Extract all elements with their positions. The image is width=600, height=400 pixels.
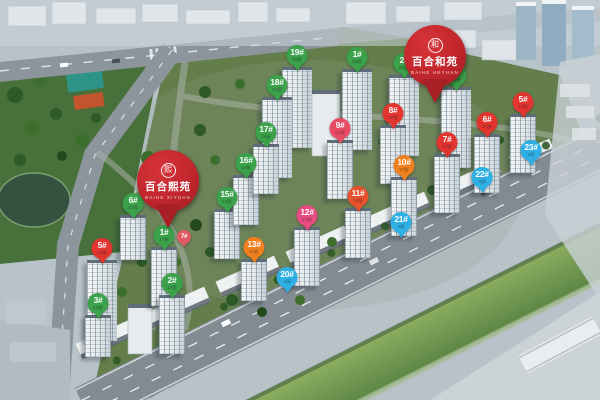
- marker-floors-label: 26层: [292, 58, 302, 63]
- marker-tail: [478, 187, 486, 193]
- marker-label: 12#: [300, 208, 313, 217]
- marker-floors-label: 4层: [283, 280, 290, 285]
- marker-label: 1#: [353, 50, 362, 59]
- marker-label: 11#: [352, 189, 365, 198]
- marker-label: 7#: [181, 234, 187, 240]
- pin-head[interactable]: 和百合和苑BAIHE HEYUAN: [404, 25, 466, 87]
- pin-title-en: BAIHE XIYUAN: [145, 195, 191, 200]
- marker-label: 7#: [443, 135, 452, 144]
- marker-bubble[interactable]: 16#14层: [236, 153, 257, 174]
- marker-floors-label: 14层: [261, 135, 271, 140]
- marker-tail: [303, 225, 311, 231]
- pin-title-en: BAIHE HEYUAN: [411, 70, 459, 75]
- marker-tail: [519, 112, 527, 118]
- marker-floors-label: 4层: [478, 180, 485, 185]
- marker-tail: [223, 207, 231, 213]
- building-marker[interactable]: 23#4层: [521, 140, 542, 166]
- marker-tail: [262, 142, 270, 148]
- marker-label: 6#: [483, 115, 492, 124]
- marker-bubble[interactable]: 22#4层: [472, 167, 493, 188]
- marker-bubble[interactable]: 1#17层: [154, 225, 175, 246]
- marker-bubble[interactable]: 17#14层: [256, 122, 277, 143]
- marker-floors-label: 17层: [442, 145, 452, 150]
- building-marker[interactable]: 5#26层: [92, 238, 113, 264]
- apartment-tower: [345, 208, 371, 258]
- building-marker[interactable]: 15#14层: [217, 187, 238, 213]
- marker-floors-label: 14层: [241, 166, 251, 171]
- marker-label: 2#: [168, 276, 177, 285]
- marker-bubble[interactable]: 19#26层: [287, 45, 308, 66]
- marker-label: 15#: [220, 190, 233, 199]
- marker-floors-label: 14层: [222, 200, 232, 205]
- marker-tail: [94, 313, 102, 319]
- marker-tail: [397, 232, 405, 238]
- pin-tail: [422, 79, 448, 103]
- marker-bubble[interactable]: 9#17层: [330, 118, 351, 139]
- project-pin[interactable]: 和百合和苑BAIHE HEYUAN: [404, 25, 466, 103]
- marker-tail: [181, 243, 187, 247]
- building-marker[interactable]: 3#11层: [88, 293, 109, 319]
- marker-label: 16#: [239, 156, 252, 165]
- marker-bubble[interactable]: 12#17层: [297, 205, 318, 226]
- marker-tail: [168, 293, 176, 299]
- marker-label: 9#: [336, 121, 345, 130]
- marker-tail: [483, 132, 491, 138]
- project-pin[interactable]: 熙百合熙苑BAIHE XIYUAN: [137, 150, 199, 228]
- marker-bubble[interactable]: 21#4层: [391, 212, 412, 233]
- marker-label: 23#: [524, 143, 537, 152]
- marker-floors-label: 17层: [159, 238, 169, 243]
- building-marker[interactable]: 13#11层: [244, 237, 265, 263]
- pin-seal-icon: 和: [428, 38, 443, 53]
- marker-label: 17#: [259, 125, 272, 134]
- marker-floors-label: 17层: [335, 131, 345, 136]
- city-blocks-topright: [516, 0, 594, 66]
- marker-floors-label: 17层: [482, 125, 492, 130]
- pin-head[interactable]: 熙百合熙苑BAIHE XIYUAN: [137, 150, 199, 212]
- building-marker[interactable]: 2#17层: [162, 273, 183, 299]
- marker-floors-label: 26层: [352, 60, 362, 65]
- marker-floors-label: 4层: [397, 225, 404, 230]
- marker-label: 5#: [98, 241, 107, 250]
- apartment-tower: [241, 259, 267, 301]
- marker-bubble[interactable]: 20#4层: [277, 267, 298, 288]
- marker-tail: [400, 175, 408, 181]
- marker-tail: [389, 123, 397, 129]
- marker-bubble[interactable]: 7#: [177, 230, 191, 244]
- marker-label: 1#: [160, 228, 169, 237]
- marker-tail: [353, 67, 361, 73]
- building-marker[interactable]: 1#17层: [154, 225, 175, 251]
- pin-tail: [155, 204, 181, 228]
- marker-bubble[interactable]: 6#17层: [477, 112, 498, 133]
- marker-label: 8#: [389, 106, 398, 115]
- marker-bubble[interactable]: 5#17层: [513, 92, 534, 113]
- apartment-tower: [253, 144, 279, 194]
- building-marker[interactable]: 11#14层: [348, 186, 369, 212]
- marker-floors-label: 11层: [249, 250, 259, 255]
- apartment-tower: [294, 227, 320, 286]
- marker-floors-label: 17层: [167, 286, 177, 291]
- marker-bubble[interactable]: 15#14层: [217, 187, 238, 208]
- building-marker[interactable]: 21#4层: [391, 212, 412, 238]
- marker-tail: [250, 257, 258, 263]
- marker-bubble[interactable]: 18#26层: [267, 75, 288, 96]
- building-marker[interactable]: 12#17层: [297, 205, 318, 231]
- marker-tail: [160, 245, 168, 251]
- marker-bubble[interactable]: 2#17层: [162, 273, 183, 294]
- marker-label: 18#: [270, 78, 283, 87]
- building-marker[interactable]: 7#17层: [437, 132, 458, 158]
- building-marker[interactable]: 6#17层: [477, 112, 498, 138]
- marker-tail: [293, 65, 301, 71]
- marker-floors-label: 14层: [353, 199, 363, 204]
- building-marker[interactable]: 22#4层: [472, 167, 493, 193]
- aerial-site-plan: 19#26层18#26层1#26层2#26层3#26层8#17层9#17层5#1…: [0, 0, 600, 400]
- marker-tail: [98, 258, 106, 264]
- marker-bubble[interactable]: 13#11层: [244, 237, 265, 258]
- marker-floors-label: 17层: [399, 168, 409, 173]
- building-marker[interactable]: 10#17层: [394, 155, 415, 181]
- marker-tail: [443, 152, 451, 158]
- marker-tail: [283, 287, 291, 293]
- building-marker[interactable]: 5#17层: [513, 92, 534, 118]
- building-marker[interactable]: 1#26层: [347, 47, 368, 73]
- marker-bubble[interactable]: 5#26层: [92, 238, 113, 259]
- marker-bubble[interactable]: 10#17层: [394, 155, 415, 176]
- marker-floors-label: 17层: [518, 105, 528, 110]
- marker-floors-label: 4层: [527, 153, 534, 158]
- pin-title-zh: 百合和苑: [412, 54, 458, 69]
- marker-label: 22#: [475, 170, 488, 179]
- building-marker[interactable]: 9#17层: [330, 118, 351, 144]
- marker-floors-label: 26层: [97, 251, 107, 256]
- building-marker[interactable]: 7#: [177, 230, 191, 247]
- building-marker[interactable]: 19#26层: [287, 45, 308, 71]
- park-lake: [0, 173, 70, 227]
- pin-seal-icon: 熙: [161, 163, 176, 178]
- marker-floors-label: 26层: [272, 88, 282, 93]
- marker-label: 10#: [397, 158, 410, 167]
- city-haze-top: [0, 0, 600, 46]
- marker-label: 3#: [94, 296, 103, 305]
- marker-label: 20#: [280, 270, 293, 279]
- marker-label: 13#: [247, 240, 260, 249]
- marker-floors-label: 17层: [388, 116, 398, 121]
- apartment-tower: [85, 315, 111, 357]
- apartment-tower: [159, 295, 185, 354]
- marker-label: 19#: [290, 48, 303, 57]
- marker-tail: [527, 160, 535, 166]
- marker-bubble[interactable]: 23#4层: [521, 140, 542, 161]
- building-marker[interactable]: 8#17层: [383, 103, 404, 129]
- marker-tail: [336, 138, 344, 144]
- building-marker[interactable]: 17#14层: [256, 122, 277, 148]
- marker-floors-label: 17层: [302, 218, 312, 223]
- marker-bubble[interactable]: 7#17层: [437, 132, 458, 153]
- marker-bubble[interactable]: 3#11层: [88, 293, 109, 314]
- marker-tail: [354, 206, 362, 212]
- marker-bubble[interactable]: 1#26层: [347, 47, 368, 68]
- marker-bubble[interactable]: 8#17层: [383, 103, 404, 124]
- marker-tail: [129, 213, 137, 219]
- marker-floors-label: 11层: [93, 306, 103, 311]
- apartment-tower: [434, 154, 460, 213]
- marker-tail: [273, 95, 281, 101]
- marker-label: 21#: [394, 215, 407, 224]
- marker-tail: [242, 173, 250, 179]
- marker-bubble[interactable]: 11#14层: [348, 186, 369, 207]
- marker-label: 5#: [519, 95, 528, 104]
- building-marker[interactable]: 18#26层: [267, 75, 288, 101]
- building-marker[interactable]: 20#4层: [277, 267, 298, 293]
- pin-title-zh: 百合熙苑: [145, 179, 191, 194]
- building-marker[interactable]: 16#14层: [236, 153, 257, 179]
